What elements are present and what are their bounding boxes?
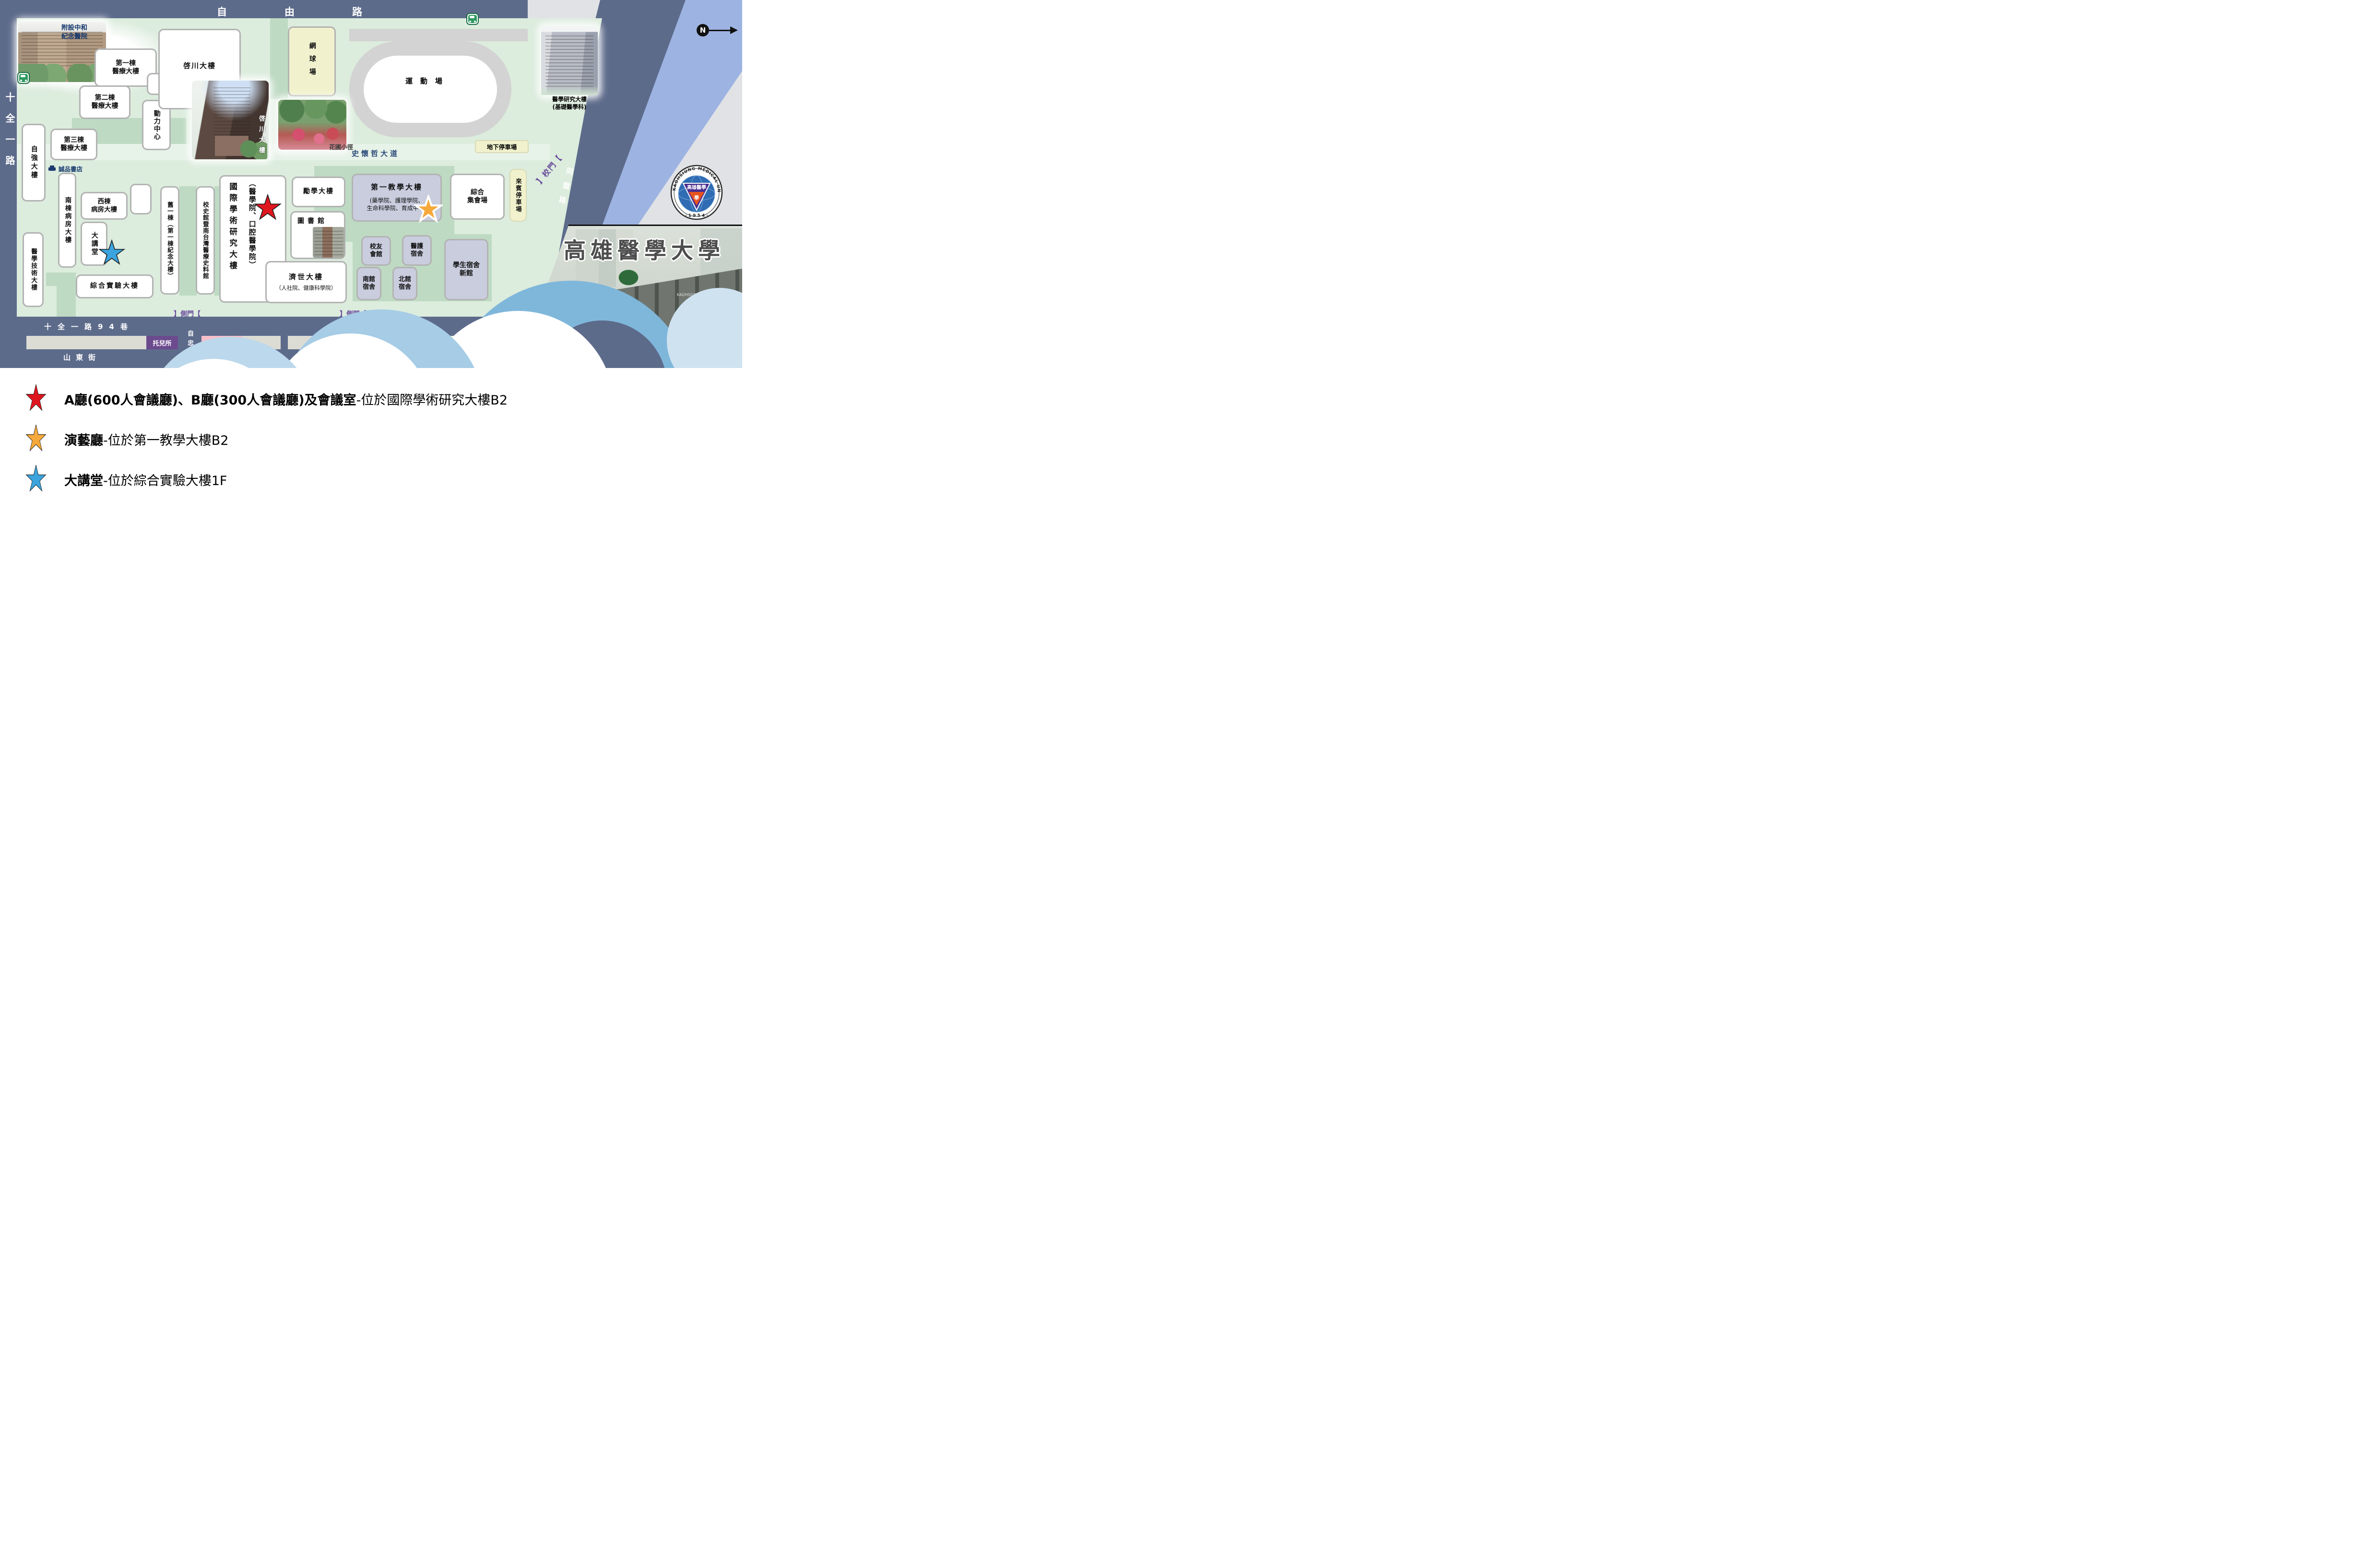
nursery-label: 托兒所 <box>153 338 171 347</box>
building-library: 圖書館 <box>290 211 345 259</box>
road-label-ziyou: 自由路 <box>217 4 420 19</box>
legend-star-red-icon <box>25 384 47 413</box>
qichuan-photo: 啓川大樓 <box>192 81 269 159</box>
garden-path-label: 花圃小徑 <box>329 142 353 151</box>
walk-path <box>46 273 76 286</box>
stadium-infield <box>364 56 497 123</box>
legend-rest-text: -位於第一教學大樓B2 <box>103 433 228 448</box>
side-gate-left-label: 】側門【 <box>174 309 201 319</box>
divider-line <box>568 225 742 226</box>
building-medical-2: 第二棟 醫療大樓 <box>79 85 130 119</box>
library-windows <box>314 229 343 255</box>
auditorium-label: 大講堂 <box>90 232 98 256</box>
tennis-label: 網球場 <box>308 42 316 81</box>
stadium-straight <box>349 29 528 41</box>
seal-core-text: 學 <box>694 195 699 201</box>
intl-research-sub-label: （醫學院、口腔醫學院） <box>248 179 257 269</box>
legend-text: 大講堂-位於綜合實驗大樓1F <box>64 470 227 489</box>
old-first-label: 舊一棟（第一棟紀念大樓） <box>166 202 174 279</box>
compass-arrow-shaft <box>709 30 732 31</box>
compass: N <box>697 23 740 37</box>
med-research-label: 醫學研究大樓 (基礎醫學科) <box>539 96 600 111</box>
legend-row-performance-hall: 演藝廳-位於第一教學大樓B2 <box>25 425 733 453</box>
legend-star-orange-icon <box>25 425 47 453</box>
bus-stop-icon <box>17 72 30 84</box>
bus-body <box>19 74 28 82</box>
legend-bold-text: 演藝廳 <box>64 433 103 448</box>
building-history-museum: 校史館暨南台灣醫療史料館 <box>196 186 215 295</box>
legend-row-conference-halls: A廳(600人會議廳)、B廳(300人會議廳)及會議室-位於國際學術研究大樓B2 <box>25 384 733 413</box>
building-new-dorm: 學生宿舍 新館 <box>444 239 488 300</box>
building-ziqiang: 自強大樓 <box>22 124 46 202</box>
bus-windshield <box>470 16 474 18</box>
history-museum-label: 校史館暨南台灣醫療史料館 <box>201 202 209 279</box>
first-teaching-label: 第一教學大樓 <box>371 183 423 192</box>
walk-path <box>57 285 76 317</box>
library-photo <box>313 227 344 258</box>
building-south-dorm: 南館 宿舍 <box>356 267 381 300</box>
legend-rest-text: -位於國際學術研究大樓B2 <box>356 393 508 408</box>
stadium-label: 運動場 <box>405 76 450 86</box>
bus-body <box>468 15 477 23</box>
compass-n: N <box>700 26 706 35</box>
building-west-ward: 西棟 病房大樓 <box>81 192 128 220</box>
building-medical-3: 第三棟 醫療大樓 <box>50 129 97 160</box>
building-unlabeled-b <box>130 184 152 214</box>
legend-rest-text: -位於綜合實驗大樓1F <box>103 474 227 488</box>
building-lixue: 勵學大樓 <box>292 177 345 207</box>
bookstore-label: 誠品書店 <box>59 164 83 173</box>
med-research-green <box>541 85 598 95</box>
hospital-label: 附設中和 紀念醫院 <box>61 24 87 41</box>
building-assembly: 綜合 集會場 <box>450 174 505 220</box>
building-qichuan-label: 啓川大樓 <box>183 61 216 71</box>
building-ziqiang-label: 自強大樓 <box>29 145 38 180</box>
schweitzer-avenue-label: 史懷哲大道 <box>352 148 400 158</box>
seal-triangle-text: 高雄醫學 <box>687 184 706 190</box>
hospital-trees <box>18 64 106 82</box>
compass-arrow-head <box>730 26 738 34</box>
building-north-dorm: 北館 宿舍 <box>392 267 417 300</box>
nursery-box: 托兒所 <box>146 336 178 349</box>
parking-strip <box>26 336 146 349</box>
building-general-lab: 綜合實驗大樓 <box>76 274 154 298</box>
med-research-photo <box>541 26 598 95</box>
bus-wheel <box>474 21 476 23</box>
map-star-orange <box>414 195 443 225</box>
underground-parking-label: 地下停車場 <box>487 142 517 151</box>
bus-wheel <box>469 21 471 23</box>
building-alumni: 校友 會館 <box>361 236 391 266</box>
underground-parking: 地下停車場 <box>475 140 529 153</box>
tennis-court: 網球場 <box>288 26 336 96</box>
med-research-windows <box>545 33 593 87</box>
qichuan-windows <box>213 87 250 142</box>
building-power-label: 動力中心 <box>152 110 161 141</box>
building-med-tech: 醫學技術大樓 <box>23 232 44 307</box>
south-ward-label: 南棟病房大樓 <box>63 197 71 244</box>
legend-bold-text: 大講堂 <box>64 474 103 488</box>
med-tech-label: 醫學技術大樓 <box>29 248 37 291</box>
building-old-first: 舊一棟（第一棟紀念大樓） <box>160 186 179 295</box>
library-label: 圖書館 <box>297 217 328 226</box>
legend-text: 演藝廳-位於第一教學大樓B2 <box>64 430 228 449</box>
legend-row-auditorium: 大講堂-位於綜合實驗大樓1F <box>25 465 733 494</box>
bus-wheel <box>20 80 22 82</box>
legend-text: A廳(600人會議廳)、B廳(300人會議廳)及會議室-位於國際學術研究大樓B2 <box>64 390 508 408</box>
legend: A廳(600人會議廳)、B廳(300人會議廳)及會議室-位於國際學術研究大樓B2… <box>0 368 742 502</box>
intl-research-label: 國際學術研究大樓 <box>227 182 237 273</box>
bus-stop-icon <box>466 13 479 25</box>
road-label-shandong: 山東街 <box>63 352 101 362</box>
university-title: 高雄醫學大學 <box>564 233 725 265</box>
legend-star-blue-icon <box>25 465 47 494</box>
compass-n-badge: N <box>697 24 709 36</box>
building-south-ward: 南棟病房大樓 <box>58 173 76 268</box>
road-left-shiquan <box>0 0 17 368</box>
road-label-shiquan: 十全一路 <box>3 92 17 177</box>
map-star-blue <box>98 239 126 268</box>
guest-parking: 來賓停車場 <box>509 169 527 222</box>
bus-windshield <box>21 75 25 77</box>
map-star-red <box>253 194 282 223</box>
campus-map: 自由路 十全一路 十全一路94巷 十全一路94巷 山東街 自忠街 同盟路 附設中… <box>0 0 742 368</box>
road-label-lane94-left: 十全一路94巷 <box>44 321 134 332</box>
university-seal: 高雄醫學 學 KAOHSIUNG MEDICAL UNIVERSITY · 1 … <box>670 164 723 221</box>
bus-wheel <box>25 80 27 82</box>
jishi-sub-label: （人社院、健康科學院） <box>276 285 337 291</box>
building-jishi: 濟世大樓 （人社院、健康科學院） <box>265 261 347 303</box>
guest-parking-label: 來賓停車場 <box>514 178 522 213</box>
jishi-label: 濟世大樓 <box>289 273 323 282</box>
bookstore-icon <box>48 166 56 171</box>
walk-path <box>270 18 288 99</box>
qichuan-photo-label: 啓川大樓 <box>257 115 266 157</box>
seal-year: · 1 9 5 4 · <box>685 214 708 218</box>
walk-path <box>179 186 197 296</box>
legend-bold-text: A廳(600人會議廳)、B廳(300人會議廳)及會議室 <box>64 393 356 408</box>
building-nurse-dorm: 醫護 宿舍 <box>402 235 432 266</box>
